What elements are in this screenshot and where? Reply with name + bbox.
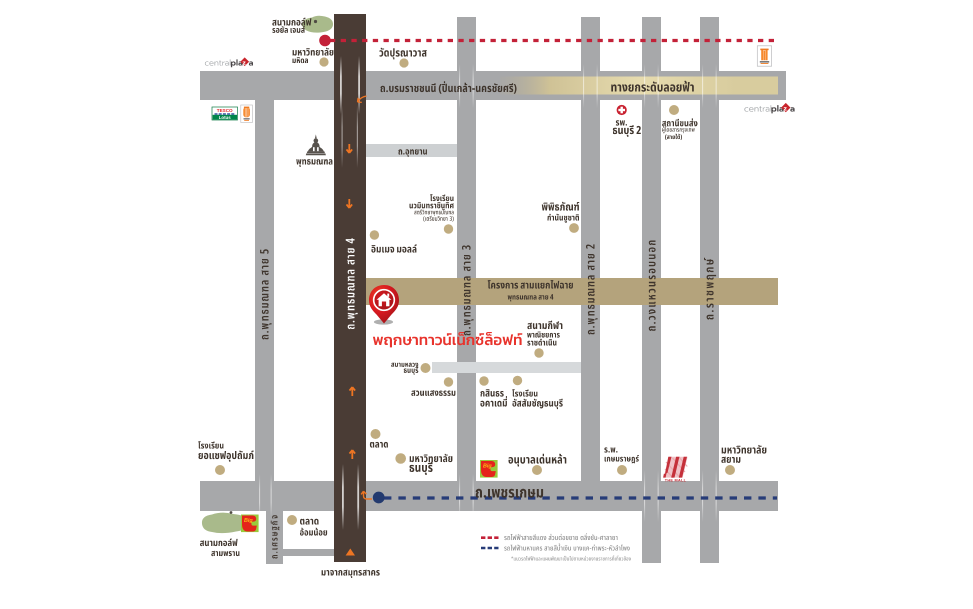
svg-text:THE MALL: THE MALL	[665, 479, 687, 483]
svg-text:Big: Big	[483, 463, 492, 469]
svg-text:Lotus: Lotus	[219, 115, 232, 120]
svg-text:Big: Big	[244, 518, 253, 524]
svg-text:TESCO: TESCO	[217, 108, 233, 113]
